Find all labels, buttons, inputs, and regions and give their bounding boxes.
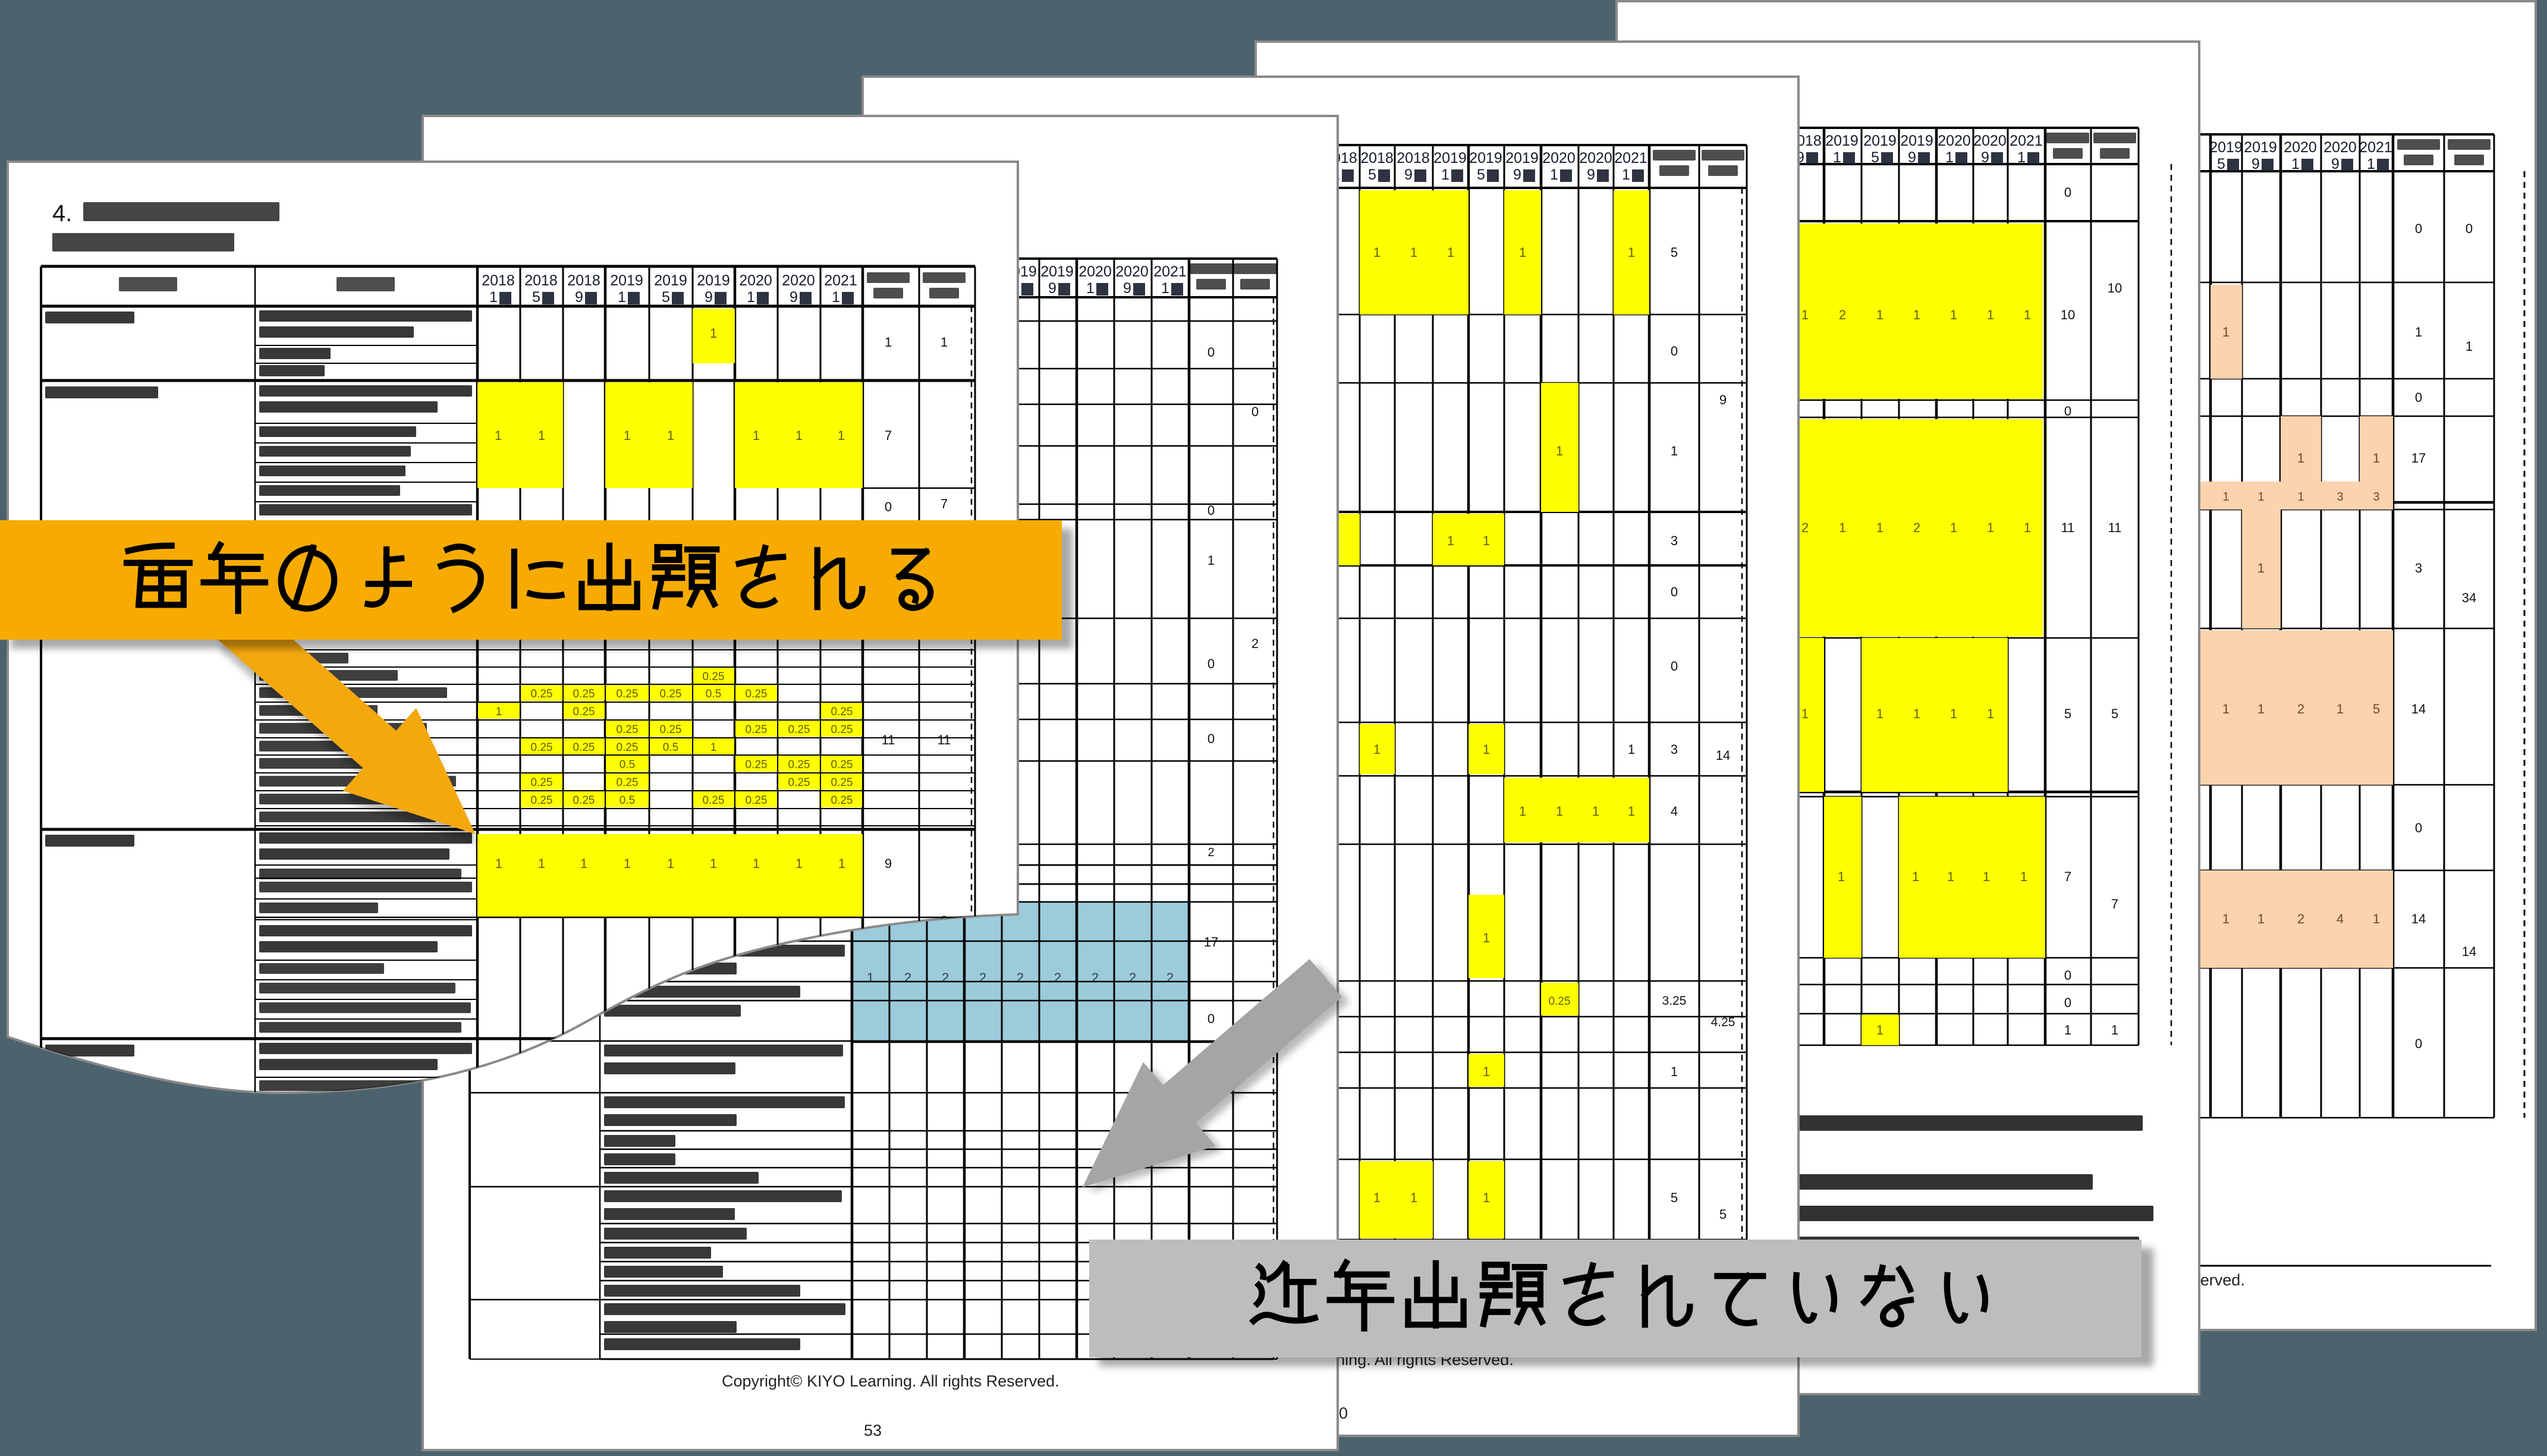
svg-text:5: 5 — [1671, 1190, 1678, 1205]
svg-text:5: 5 — [1871, 149, 1879, 166]
svg-text:0.25: 0.25 — [831, 706, 853, 718]
svg-text:1: 1 — [1483, 1064, 1490, 1079]
svg-text:2020: 2020 — [1542, 150, 1576, 166]
svg-text:1: 1 — [1839, 520, 1846, 535]
svg-text:9: 9 — [705, 289, 713, 306]
svg-text:5: 5 — [1719, 1207, 1727, 1222]
svg-text:4.25: 4.25 — [1711, 1015, 1735, 1029]
svg-text:2018: 2018 — [524, 272, 558, 289]
svg-text:2: 2 — [1801, 520, 1809, 535]
svg-text:0: 0 — [1671, 344, 1678, 359]
svg-text:1: 1 — [2222, 911, 2230, 926]
svg-text:1: 1 — [2111, 1023, 2118, 1037]
svg-text:2019: 2019 — [1433, 150, 1467, 166]
svg-text:2019: 2019 — [1863, 133, 1897, 149]
svg-text:14: 14 — [1716, 748, 1730, 763]
svg-text:2: 2 — [942, 970, 949, 985]
svg-text:1: 1 — [2257, 702, 2265, 716]
svg-text:9: 9 — [885, 856, 892, 871]
svg-text:0.5: 0.5 — [620, 794, 635, 807]
svg-text:0: 0 — [2415, 221, 2422, 236]
svg-text:0: 0 — [1208, 503, 1215, 518]
svg-text:2020: 2020 — [2284, 139, 2317, 156]
svg-text:1: 1 — [2373, 911, 2380, 926]
svg-text:1: 1 — [1447, 533, 1454, 548]
svg-text:1: 1 — [1373, 742, 1381, 757]
svg-text:5: 5 — [1368, 166, 1376, 183]
svg-text:2: 2 — [1017, 970, 1024, 985]
svg-text:3: 3 — [2373, 490, 2379, 504]
svg-text:2021: 2021 — [2010, 133, 2043, 149]
svg-text:2: 2 — [1252, 636, 1259, 651]
svg-text:2: 2 — [904, 970, 911, 985]
svg-text:1: 1 — [1373, 1190, 1381, 1205]
svg-text:2019: 2019 — [2244, 139, 2277, 156]
svg-text:0.25: 0.25 — [617, 776, 639, 789]
svg-text:7: 7 — [2064, 869, 2071, 884]
svg-text:1: 1 — [1483, 742, 1490, 757]
svg-text:1: 1 — [1913, 307, 1920, 322]
svg-text:1: 1 — [2024, 307, 2031, 322]
svg-text:0.25: 0.25 — [617, 741, 639, 754]
svg-text:5: 5 — [1477, 166, 1485, 183]
svg-text:2020: 2020 — [1973, 133, 2007, 149]
svg-text:2019: 2019 — [654, 272, 687, 289]
svg-text:9: 9 — [2331, 156, 2340, 172]
svg-text:1: 1 — [1628, 804, 1635, 819]
svg-text:0: 0 — [1671, 659, 1678, 674]
svg-text:1: 1 — [1519, 804, 1526, 819]
svg-text:2: 2 — [1839, 307, 1846, 322]
svg-text:17: 17 — [2411, 451, 2426, 466]
svg-text:2019: 2019 — [1469, 150, 1502, 166]
svg-text:1: 1 — [710, 741, 717, 754]
svg-text:1: 1 — [753, 856, 760, 871]
svg-text:0.25: 0.25 — [573, 688, 595, 700]
svg-text:9: 9 — [790, 289, 798, 306]
svg-text:0: 0 — [1208, 656, 1215, 671]
svg-text:0: 0 — [1208, 345, 1215, 360]
svg-text:1: 1 — [2257, 490, 2264, 504]
svg-text:1: 1 — [838, 428, 845, 443]
svg-text:14: 14 — [2411, 911, 2426, 926]
svg-text:1: 1 — [2257, 911, 2265, 926]
svg-text:5: 5 — [532, 289, 540, 306]
svg-text:2: 2 — [2297, 911, 2304, 926]
svg-text:1: 1 — [1671, 1064, 1678, 1079]
svg-text:0.25: 0.25 — [531, 776, 553, 789]
svg-text:2: 2 — [1208, 846, 1214, 859]
svg-text:0: 0 — [885, 499, 892, 514]
svg-text:2021: 2021 — [1614, 150, 1647, 166]
svg-text:4: 4 — [2337, 911, 2344, 926]
svg-text:1: 1 — [624, 856, 631, 871]
svg-text:2019: 2019 — [1040, 263, 1074, 280]
svg-text:2021: 2021 — [1153, 263, 1187, 280]
svg-text:3: 3 — [2415, 561, 2422, 576]
svg-text:0: 0 — [2466, 221, 2473, 236]
svg-text:11: 11 — [2061, 520, 2075, 535]
svg-text:3: 3 — [1671, 533, 1678, 548]
svg-text:1: 1 — [1671, 444, 1678, 458]
svg-text:1: 1 — [2020, 869, 2027, 884]
svg-text:2018: 2018 — [1360, 150, 1394, 166]
svg-text:0.5: 0.5 — [620, 759, 635, 771]
svg-text:2: 2 — [2297, 702, 2304, 716]
svg-text:1: 1 — [1950, 307, 1957, 322]
svg-text:0.25: 0.25 — [746, 759, 768, 771]
svg-text:5: 5 — [2217, 156, 2225, 172]
svg-text:2018: 2018 — [482, 272, 515, 289]
svg-text:1: 1 — [2367, 156, 2375, 172]
svg-text:1: 1 — [2337, 702, 2344, 716]
svg-text:11: 11 — [882, 732, 895, 747]
svg-text:0: 0 — [1208, 1011, 1215, 1026]
svg-text:2: 2 — [1092, 970, 1099, 985]
svg-text:9: 9 — [1513, 166, 1521, 183]
svg-text:Copyright© KIYO Learning. All: Copyright© KIYO Learning. All rights Res… — [722, 1372, 1059, 1390]
svg-text:0.25: 0.25 — [531, 688, 553, 700]
svg-text:5: 5 — [2111, 706, 2118, 721]
svg-text:1: 1 — [1161, 280, 1169, 297]
svg-text:0: 0 — [1252, 404, 1259, 419]
svg-text:0.25: 0.25 — [746, 794, 768, 807]
svg-text:0.25: 0.25 — [573, 794, 595, 807]
svg-text:1: 1 — [1483, 533, 1490, 548]
svg-text:1: 1 — [667, 428, 674, 443]
svg-text:1: 1 — [795, 856, 803, 871]
svg-text:1: 1 — [832, 289, 840, 306]
svg-text:1: 1 — [2466, 339, 2473, 354]
svg-text:1: 1 — [867, 970, 874, 985]
svg-text:0: 0 — [1671, 584, 1678, 599]
svg-text:2020: 2020 — [2323, 139, 2357, 156]
svg-text:1: 1 — [2415, 325, 2422, 339]
svg-text:1: 1 — [1550, 166, 1558, 183]
svg-text:0.25: 0.25 — [1549, 995, 1571, 1008]
svg-text:2020: 2020 — [1115, 263, 1149, 280]
svg-text:2: 2 — [1166, 970, 1174, 985]
svg-text:0.25: 0.25 — [788, 724, 810, 736]
svg-text:1: 1 — [489, 289, 498, 306]
svg-text:11: 11 — [938, 732, 951, 747]
svg-text:1: 1 — [1983, 869, 1990, 884]
svg-text:1: 1 — [2291, 156, 2300, 172]
svg-text:1: 1 — [1801, 307, 1809, 322]
svg-text:1: 1 — [495, 428, 502, 443]
svg-text:9: 9 — [2252, 156, 2260, 172]
svg-text:0.25: 0.25 — [831, 776, 853, 789]
svg-text:0: 0 — [2064, 968, 2071, 983]
svg-text:0.25: 0.25 — [831, 724, 853, 736]
svg-text:2020: 2020 — [739, 272, 772, 289]
svg-text:2018: 2018 — [567, 272, 600, 289]
svg-text:1: 1 — [1833, 149, 1841, 166]
svg-text:1: 1 — [1441, 166, 1449, 183]
svg-text:3: 3 — [2337, 490, 2343, 504]
svg-text:1: 1 — [838, 856, 845, 871]
svg-text:2020: 2020 — [1078, 263, 1112, 280]
svg-text:9: 9 — [575, 289, 583, 306]
svg-text:0: 0 — [2415, 820, 2422, 835]
svg-text:1: 1 — [1876, 706, 1883, 721]
svg-text:5: 5 — [662, 289, 670, 306]
svg-text:1: 1 — [2297, 451, 2304, 466]
svg-text:1: 1 — [1410, 1190, 1417, 1205]
svg-text:1: 1 — [2222, 325, 2230, 339]
svg-text:4.: 4. — [52, 200, 72, 227]
svg-text:10: 10 — [2061, 307, 2075, 322]
svg-text:1: 1 — [1556, 804, 1563, 819]
svg-text:0.25: 0.25 — [573, 741, 595, 754]
svg-text:1: 1 — [618, 289, 626, 306]
svg-text:7: 7 — [941, 496, 948, 511]
svg-text:2019: 2019 — [1825, 133, 1859, 149]
svg-text:1: 1 — [2024, 520, 2031, 535]
svg-text:17: 17 — [1204, 935, 1218, 949]
svg-text:0.25: 0.25 — [788, 776, 810, 789]
svg-text:2020: 2020 — [782, 272, 815, 289]
svg-text:2019: 2019 — [610, 272, 643, 289]
svg-text:14: 14 — [2462, 944, 2476, 959]
svg-text:2019: 2019 — [1900, 133, 1933, 149]
svg-text:1: 1 — [1987, 706, 1994, 721]
svg-text:0.25: 0.25 — [573, 706, 595, 718]
svg-text:2: 2 — [1129, 970, 1136, 985]
svg-text:0.25: 0.25 — [660, 688, 682, 700]
svg-text:1: 1 — [2017, 149, 2026, 166]
svg-text:1: 1 — [1950, 520, 1957, 535]
svg-text:0.25: 0.25 — [703, 671, 725, 683]
svg-text:2020: 2020 — [1938, 133, 1971, 149]
svg-text:1: 1 — [667, 856, 674, 871]
svg-text:0.25: 0.25 — [531, 741, 553, 754]
svg-text:0.25: 0.25 — [531, 794, 553, 807]
svg-text:1: 1 — [1556, 444, 1563, 458]
svg-text:34: 34 — [2462, 590, 2476, 605]
svg-text:2: 2 — [1054, 970, 1061, 985]
svg-text:5: 5 — [1671, 245, 1678, 260]
svg-text:1: 1 — [753, 428, 760, 443]
svg-text:1: 1 — [710, 326, 717, 341]
svg-text:9: 9 — [1404, 166, 1413, 183]
svg-text:1: 1 — [538, 856, 545, 871]
svg-text:1: 1 — [1447, 245, 1454, 260]
svg-text:1: 1 — [1913, 706, 1920, 721]
svg-text:0.25: 0.25 — [831, 794, 853, 807]
svg-text:1: 1 — [1483, 1190, 1490, 1205]
svg-text:1: 1 — [1876, 1023, 1883, 1037]
svg-text:0.25: 0.25 — [746, 724, 768, 736]
svg-text:1: 1 — [1987, 520, 1994, 535]
svg-text:1: 1 — [1208, 553, 1215, 568]
svg-text:2: 2 — [1913, 520, 1920, 535]
svg-text:3.25: 3.25 — [1662, 994, 1687, 1008]
svg-text:0: 0 — [2064, 404, 2071, 419]
svg-text:1: 1 — [885, 335, 892, 350]
svg-text:0.5: 0.5 — [663, 741, 678, 754]
svg-text:7: 7 — [885, 428, 892, 443]
svg-text:1: 1 — [1483, 930, 1490, 945]
svg-text:1: 1 — [747, 289, 755, 306]
svg-text:2021: 2021 — [2359, 139, 2392, 156]
svg-text:1: 1 — [1628, 245, 1635, 260]
svg-text:0: 0 — [2064, 995, 2071, 1010]
svg-text:1: 1 — [580, 856, 587, 871]
svg-text:1: 1 — [1987, 307, 1994, 322]
svg-text:2018: 2018 — [1397, 150, 1430, 166]
svg-text:1: 1 — [2257, 561, 2265, 576]
svg-text:1: 1 — [1912, 869, 1919, 884]
svg-text:53: 53 — [864, 1422, 882, 1439]
svg-text:0: 0 — [1208, 731, 1215, 746]
svg-text:0.25: 0.25 — [788, 759, 810, 771]
svg-text:9: 9 — [1719, 392, 1727, 407]
svg-text:1: 1 — [538, 428, 545, 443]
svg-text:1: 1 — [1086, 280, 1095, 297]
svg-text:2019: 2019 — [2209, 139, 2243, 156]
svg-text:1: 1 — [1801, 706, 1809, 721]
svg-text:0: 0 — [2415, 1036, 2422, 1051]
svg-text:1: 1 — [2373, 451, 2380, 466]
svg-text:3: 3 — [1671, 742, 1678, 757]
svg-text:4: 4 — [1671, 804, 1678, 819]
svg-text:1: 1 — [941, 335, 948, 350]
svg-text:0.5: 0.5 — [706, 688, 721, 700]
svg-text:2019: 2019 — [697, 272, 730, 289]
svg-text:1: 1 — [2064, 1023, 2071, 1037]
svg-text:1: 1 — [1628, 742, 1635, 757]
svg-text:9: 9 — [1908, 149, 1916, 166]
svg-text:1: 1 — [710, 856, 717, 871]
svg-text:1: 1 — [2222, 702, 2230, 716]
svg-text:5: 5 — [2064, 706, 2071, 721]
svg-text:0.25: 0.25 — [617, 688, 639, 700]
svg-text:1: 1 — [1838, 869, 1845, 884]
svg-text:2019: 2019 — [1505, 150, 1539, 166]
svg-text:1: 1 — [2297, 490, 2304, 504]
svg-text:1: 1 — [795, 428, 803, 443]
svg-text:0.25: 0.25 — [746, 688, 768, 700]
svg-text:1: 1 — [1876, 307, 1883, 322]
svg-text:2020: 2020 — [1579, 150, 1612, 166]
svg-text:1: 1 — [1876, 520, 1883, 535]
svg-text:1: 1 — [496, 706, 502, 718]
svg-text:1: 1 — [495, 856, 502, 871]
svg-text:9: 9 — [1587, 166, 1595, 183]
svg-text:0: 0 — [2064, 185, 2071, 200]
svg-text:9: 9 — [1123, 280, 1131, 297]
svg-text:1: 1 — [1950, 706, 1957, 721]
svg-text:9: 9 — [1981, 149, 1989, 166]
svg-text:1: 1 — [1373, 245, 1381, 260]
svg-text:0.25: 0.25 — [831, 759, 853, 771]
svg-text:0.25: 0.25 — [617, 724, 639, 736]
svg-text:1: 1 — [1947, 869, 1954, 884]
svg-text:10: 10 — [2108, 281, 2122, 295]
svg-text:1: 1 — [1410, 245, 1417, 260]
svg-text:11: 11 — [2108, 520, 2122, 535]
svg-text:1: 1 — [1945, 149, 1954, 166]
svg-text:5: 5 — [2373, 702, 2380, 716]
svg-text:0: 0 — [2415, 390, 2422, 405]
svg-text:1: 1 — [1592, 804, 1599, 819]
svg-text:9: 9 — [1048, 280, 1056, 297]
svg-text:1: 1 — [2222, 490, 2229, 504]
svg-text:0.25: 0.25 — [703, 794, 725, 807]
svg-text:14: 14 — [2411, 702, 2426, 716]
svg-text:7: 7 — [2111, 897, 2118, 911]
svg-text:1: 1 — [624, 428, 631, 443]
svg-text:2: 2 — [979, 970, 986, 985]
svg-text:2021: 2021 — [824, 272, 857, 289]
svg-text:0.25: 0.25 — [660, 724, 682, 736]
svg-text:1: 1 — [1622, 166, 1630, 183]
svg-text:1: 1 — [1519, 245, 1526, 260]
